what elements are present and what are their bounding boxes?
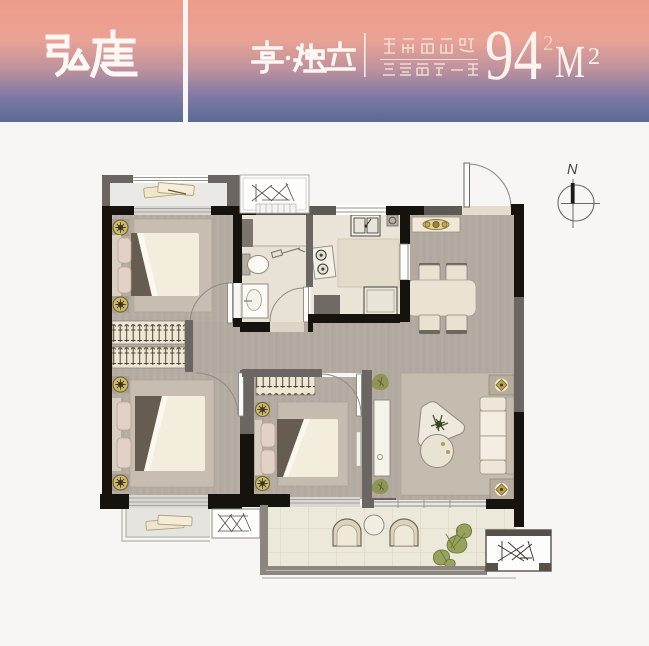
svg-text:M: M <box>555 36 585 87</box>
svg-text:N: N <box>567 162 578 178</box>
svg-text:2: 2 <box>543 31 554 55</box>
svg-text:2: 2 <box>588 44 600 70</box>
svg-text:94: 94 <box>485 15 542 95</box>
